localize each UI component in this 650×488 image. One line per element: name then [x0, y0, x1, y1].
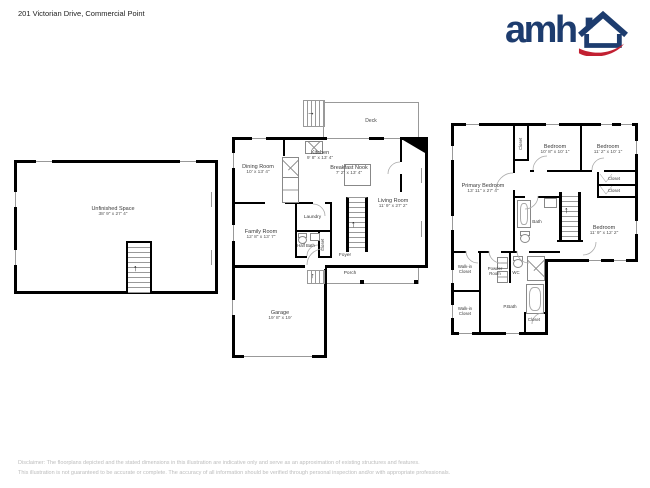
window	[621, 122, 632, 127]
right-arrow-icon: →	[307, 108, 315, 117]
up-arrow-icon: ↑	[564, 206, 569, 215]
window	[601, 122, 612, 127]
amh-house-icon	[578, 10, 628, 61]
room-label-kitchen: Kitchen 9' 8" x 13' 4"	[298, 150, 342, 162]
room-dims: 19' 8" x 19'	[250, 316, 310, 322]
garage-door	[244, 356, 312, 357]
disclaimer-line-1: Disclaimer: The floorplans depicted and …	[18, 460, 420, 466]
porch-post	[414, 280, 418, 284]
room-dims: 7' 2" x 13' 4"	[326, 171, 372, 177]
up-arrow-icon: ↑	[351, 220, 356, 229]
room-label-pbath: P.Bath	[494, 304, 526, 310]
amh-logo-text: amh	[505, 10, 576, 50]
room-dims: 10' 8" x 10' 1"	[531, 150, 579, 156]
property-address: 201 Victorian Drive, Commercial Point	[18, 9, 145, 18]
wall	[513, 126, 515, 161]
wall	[545, 259, 548, 335]
deck-outline: Deck	[323, 102, 419, 139]
floorplan-page: 201 Victorian Drive, Commercial Point am…	[0, 0, 650, 488]
wall	[557, 240, 583, 242]
refrigerator-icon	[282, 157, 299, 179]
window	[614, 258, 626, 263]
window	[209, 250, 214, 265]
window	[419, 221, 424, 237]
room-label-unfinished-space: Unfinished Space 38' 9" x 27' 4"	[24, 206, 202, 218]
room-label-breakfast-nook: Breakfast Nook 7' 2" x 13' 4"	[326, 165, 372, 177]
porch-edge	[418, 268, 419, 284]
wall	[597, 196, 635, 198]
room-label-laundry: Laundry	[296, 215, 329, 221]
shower-icon	[527, 256, 545, 281]
window	[230, 300, 235, 315]
window	[634, 141, 639, 154]
room-name: Deck	[365, 118, 376, 124]
room-name: Half Bath	[294, 243, 318, 249]
wall	[454, 290, 479, 292]
basement-staircase	[126, 241, 152, 293]
room-label-bedroom-3: Bedroom 11' 2" x 10' 1"	[584, 144, 632, 156]
room-dims: 12' 8" x 13' 7"	[239, 235, 283, 241]
room-label-primary-bedroom: Primary Bedroom 13' 11" x 27' 4"	[456, 183, 510, 195]
window	[180, 159, 196, 164]
room-label-closet-r1: Closet	[598, 176, 630, 182]
wall	[330, 202, 332, 258]
room-label-foyer: Foyer	[329, 253, 361, 259]
room-dims: 11' 9" x 27' 2"	[371, 204, 415, 210]
bathtub-icon	[526, 284, 544, 314]
main-staircase	[346, 197, 368, 252]
counter-icon	[282, 177, 299, 203]
window	[450, 216, 455, 230]
room-label-closet-bottom: Closet	[522, 317, 546, 323]
front-stoop	[307, 270, 325, 284]
wall	[454, 251, 466, 253]
room-label-porch: Porch	[333, 271, 367, 277]
room-label-powder-room: Powder Room	[482, 266, 508, 276]
room-name: Foyer	[329, 253, 361, 259]
wall	[513, 196, 525, 198]
room-name: Bath	[526, 219, 548, 225]
room-label-bedroom-2: Bedroom 10' 8" x 10' 1"	[531, 144, 579, 156]
wall	[529, 251, 560, 253]
wall	[604, 170, 635, 172]
room-label-family: Family Room 12' 8" x 13' 7"	[239, 229, 283, 241]
wall	[527, 126, 529, 161]
wall	[400, 140, 402, 162]
upper-staircase	[559, 192, 581, 240]
window	[231, 225, 236, 241]
wall	[513, 190, 515, 251]
room-dims: 38' 9" x 27' 4"	[24, 212, 202, 218]
window	[419, 168, 424, 183]
room-label-closet: Closet	[320, 235, 325, 255]
window	[384, 136, 400, 141]
room-name: Walk-in Closet	[452, 306, 478, 316]
room-name: WC	[508, 270, 524, 276]
basement-plan-outline	[14, 160, 218, 294]
window	[459, 331, 472, 336]
room-dims: 11' 9" x 12' 2"	[580, 231, 628, 237]
room-dims: 11' 2" x 10' 1"	[584, 150, 632, 156]
up-arrow-icon: ↑	[133, 264, 138, 273]
wall	[479, 253, 481, 332]
room-label-closet-r2: Closet	[598, 188, 630, 194]
window	[466, 122, 479, 127]
sink-icon	[310, 233, 320, 241]
window	[506, 331, 519, 336]
wall	[400, 174, 402, 192]
porch-edge	[327, 283, 419, 284]
room-name: Closet	[522, 317, 546, 323]
room-label-dining: Dining Room 10' x 13' 4"	[236, 164, 280, 176]
window	[13, 192, 18, 207]
wall	[295, 256, 307, 258]
sliding-door	[327, 136, 369, 141]
room-dims: 10' x 13' 4"	[236, 170, 280, 176]
room-label-wc: WC	[508, 270, 524, 276]
room-label-half-bath: Half Bath	[294, 243, 318, 249]
room-dims: 9' 8" x 13' 4"	[298, 156, 342, 162]
room-name: Porch	[333, 271, 367, 277]
disclaimer-line-2: This illustration is not guaranteed to b…	[18, 470, 450, 476]
room-name: Closet	[598, 176, 630, 182]
porch-post	[360, 280, 364, 284]
room-label-walkin-closet-2: Walk-in Closet	[452, 306, 478, 316]
window	[13, 250, 18, 265]
room-label-bedroom-4: Bedroom 11' 9" x 12' 2"	[580, 225, 628, 237]
room-name: P.Bath	[494, 304, 526, 310]
room-name: Walk-in Closet	[452, 264, 478, 274]
wall	[580, 126, 582, 170]
wall	[547, 170, 592, 172]
front-door-opening	[305, 263, 325, 269]
wall	[297, 230, 330, 232]
room-label-living: Living Room 11' 9" x 27' 2"	[371, 198, 415, 210]
room-label-garage: Garage 19' 8" x 19'	[250, 310, 310, 322]
room-label-closet-top: Closet	[518, 131, 523, 157]
window	[634, 221, 639, 234]
wall	[509, 253, 511, 283]
room-label-bath: Bath	[526, 219, 548, 225]
up-arrow-icon: ↑	[311, 272, 315, 281]
window	[546, 122, 559, 127]
wall	[283, 140, 285, 156]
toilet-icon	[513, 259, 523, 268]
window	[209, 192, 214, 207]
room-name: Closet	[598, 188, 630, 194]
wall	[597, 184, 635, 186]
window	[589, 258, 601, 263]
wall	[530, 170, 534, 172]
toilet-icon	[520, 234, 530, 243]
amh-logo: amh	[505, 10, 628, 61]
room-name: Powder Room	[482, 266, 508, 276]
room-dims: 13' 11" x 27' 4"	[456, 189, 510, 195]
wall	[235, 202, 265, 204]
room-name: Laundry	[296, 215, 329, 221]
wall	[513, 161, 515, 173]
window	[36, 159, 52, 164]
sink-icon	[544, 198, 557, 208]
room-label-walkin-closet-1: Walk-in Closet	[452, 264, 478, 274]
window	[450, 146, 455, 160]
window	[252, 136, 266, 141]
wall	[513, 159, 529, 161]
